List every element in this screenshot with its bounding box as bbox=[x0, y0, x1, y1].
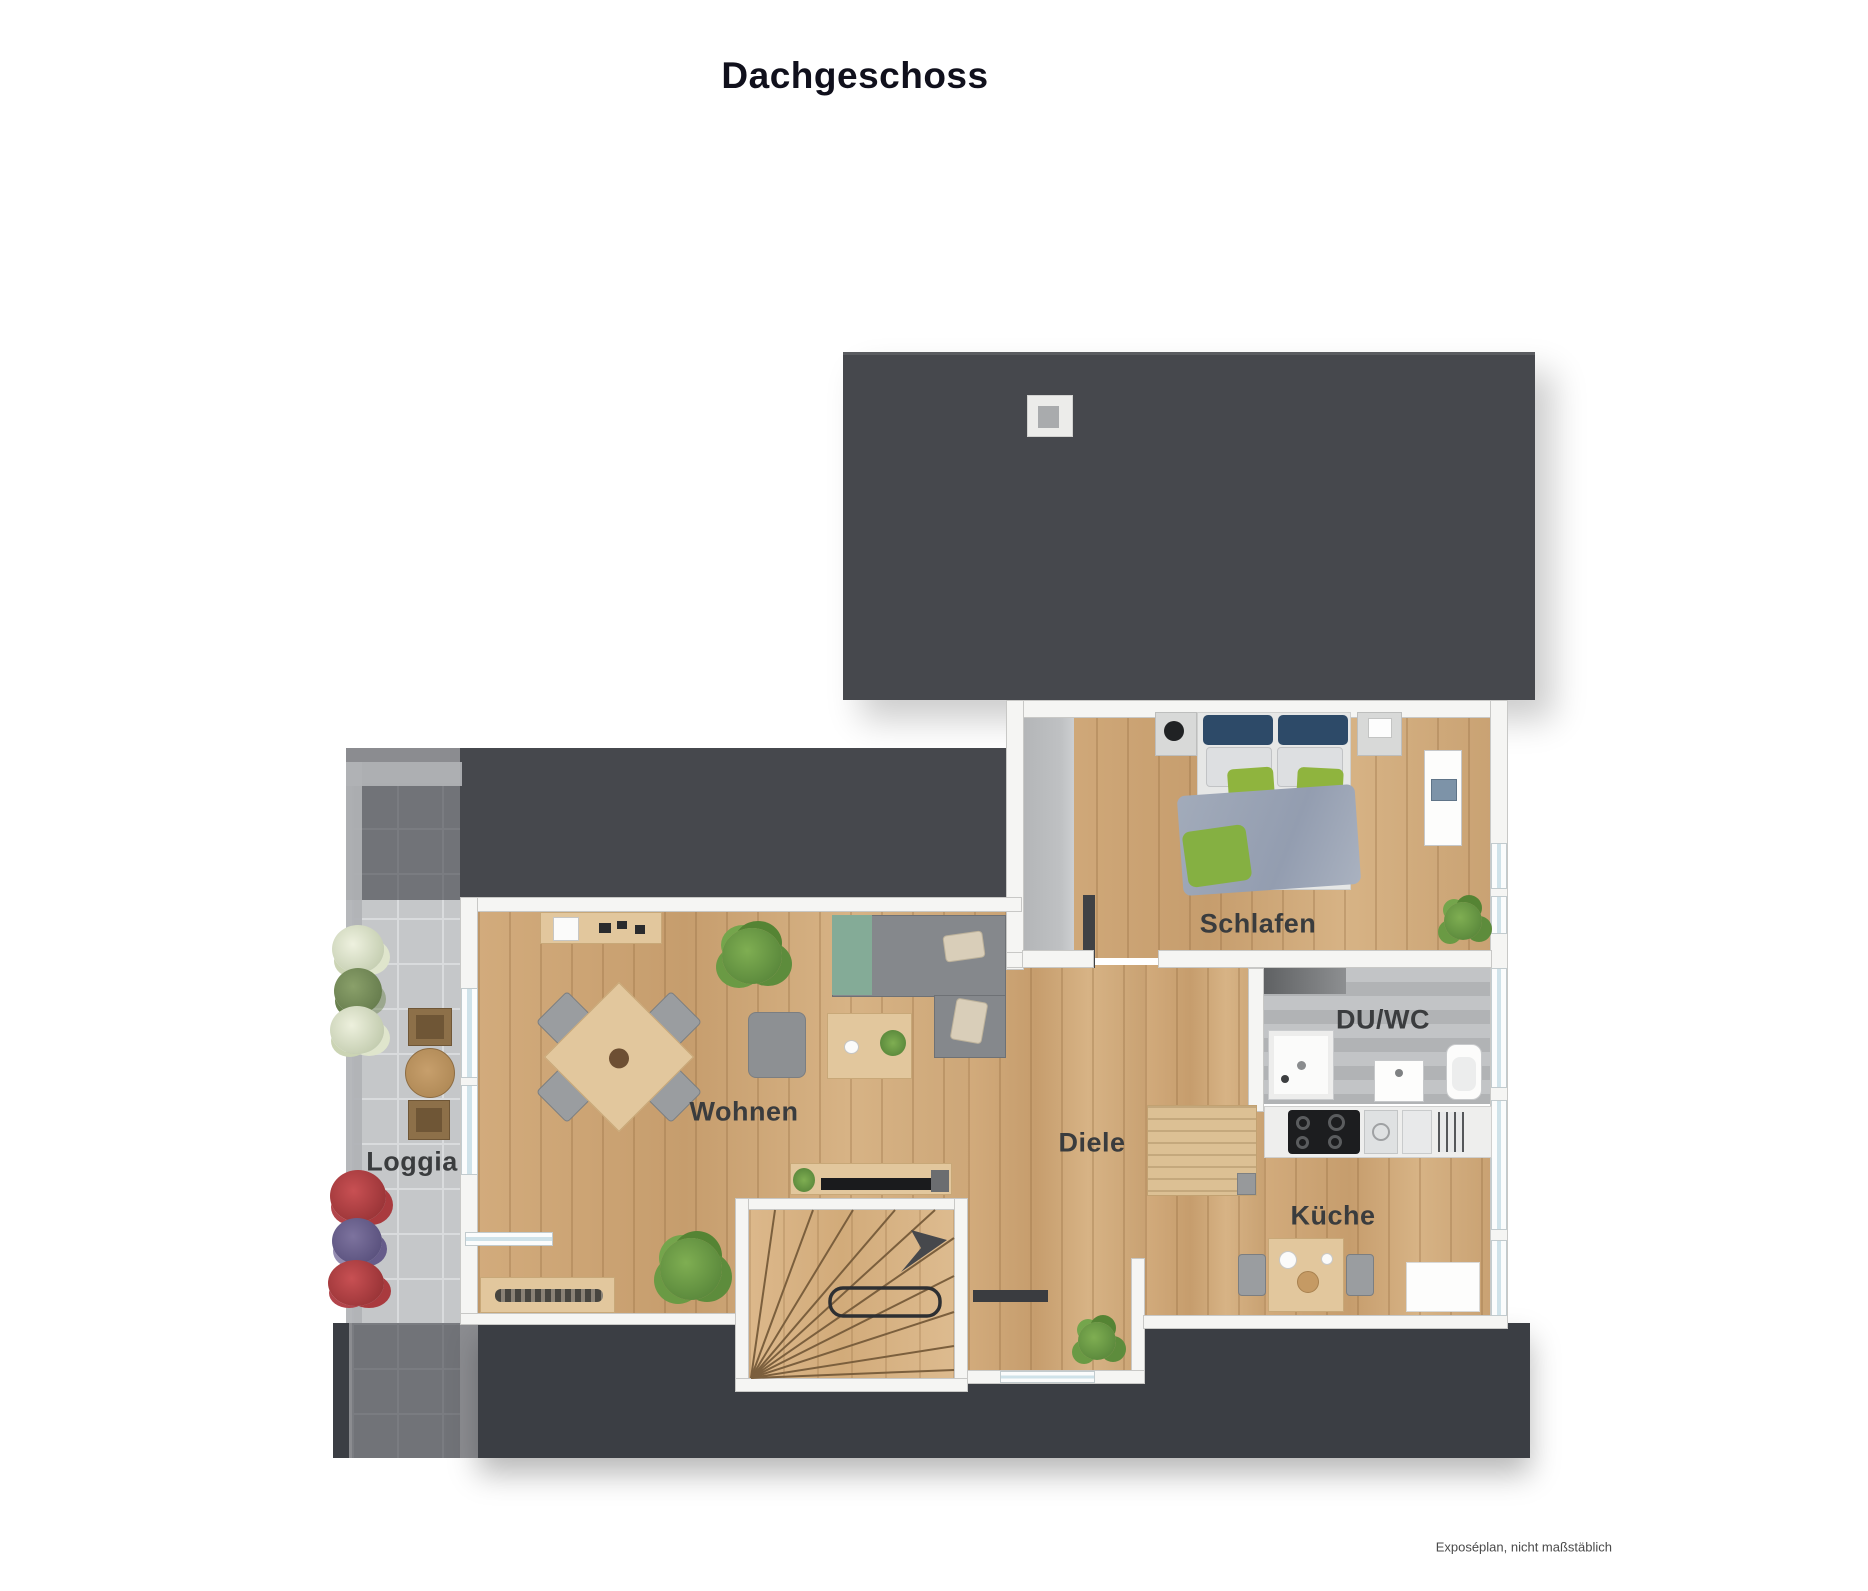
label-kueche: Küche bbox=[1290, 1201, 1375, 1232]
loggia-stool-1 bbox=[408, 1008, 452, 1046]
tv-lowboard bbox=[790, 1163, 952, 1195]
kitchen-sink bbox=[1364, 1110, 1398, 1154]
schlafen-west-wall bbox=[1006, 700, 1024, 970]
duwc-shelf bbox=[1264, 968, 1346, 994]
stair-opening-rail bbox=[973, 1290, 1048, 1302]
schlafen-east-window-1 bbox=[1491, 843, 1507, 889]
roof-left-band bbox=[460, 748, 1022, 900]
cooktop bbox=[1288, 1110, 1360, 1154]
wohnen-south-wall bbox=[460, 1313, 738, 1325]
bedside-lamp bbox=[1164, 721, 1184, 741]
sofa-cushion-1 bbox=[942, 930, 985, 962]
floor-plan: Dachgeschoss bbox=[0, 0, 1868, 1591]
burner-1 bbox=[1296, 1116, 1310, 1130]
coffee-table bbox=[827, 1013, 912, 1079]
loggia-table bbox=[405, 1048, 455, 1098]
cutting-board bbox=[1402, 1110, 1432, 1154]
duwc-west-wall bbox=[1248, 968, 1264, 1112]
schlafen-plant bbox=[1444, 902, 1482, 940]
bed-throw-green bbox=[1181, 824, 1252, 888]
footnote: Exposéplan, nicht maßstäblich bbox=[1436, 1540, 1612, 1555]
roof-top bbox=[843, 352, 1535, 700]
label-diele: Diele bbox=[1058, 1128, 1125, 1159]
loggia-flowers-red-2 bbox=[328, 1260, 384, 1306]
duwc-east-window bbox=[1491, 968, 1507, 1088]
laptop bbox=[1431, 779, 1457, 801]
armchair bbox=[748, 1012, 806, 1078]
kitchen-sink-basin bbox=[1372, 1123, 1390, 1141]
loggia-parapet-top bbox=[346, 762, 462, 786]
picture-frame bbox=[553, 917, 579, 941]
wardrobe bbox=[1147, 1105, 1257, 1196]
label-duwc: DU/WC bbox=[1336, 1005, 1430, 1036]
utensils bbox=[1438, 1112, 1464, 1152]
sideboard bbox=[540, 912, 662, 944]
chimney-flue bbox=[1038, 406, 1059, 428]
shower-drain bbox=[1297, 1061, 1306, 1070]
tv-plant bbox=[793, 1168, 815, 1192]
deco-3 bbox=[635, 925, 645, 934]
stairs-up-arrow-icon bbox=[901, 1230, 947, 1272]
schlafen-south-wall-a bbox=[1022, 950, 1094, 968]
kitchen-table bbox=[1268, 1238, 1344, 1312]
loggia-flowers-purple bbox=[332, 1218, 382, 1264]
nightstand-right bbox=[1357, 712, 1402, 756]
label-wohnen: Wohnen bbox=[690, 1097, 799, 1128]
coffee-table-cup bbox=[844, 1040, 859, 1054]
burner-2 bbox=[1328, 1114, 1345, 1131]
page-title: Dachgeschoss bbox=[721, 55, 988, 97]
wohnen-west-window-2 bbox=[461, 1085, 478, 1175]
loggia-flowers-white-1 bbox=[332, 925, 384, 973]
wardrobe-box bbox=[1237, 1173, 1256, 1195]
coffee-table-plant bbox=[880, 1030, 906, 1056]
roof-bottom-over-loggia bbox=[346, 1323, 478, 1458]
loggia-flowers-red-1 bbox=[330, 1170, 386, 1222]
kueche-east-window-1 bbox=[1491, 1100, 1507, 1230]
kitchen-chair-right bbox=[1346, 1254, 1374, 1296]
schlafen-desk bbox=[1424, 750, 1462, 846]
stairs-treads bbox=[735, 1198, 968, 1392]
burner-3 bbox=[1296, 1136, 1309, 1149]
dining-centerpiece bbox=[605, 1044, 633, 1072]
sink-faucet bbox=[1395, 1069, 1403, 1077]
nightstand-book bbox=[1368, 718, 1392, 738]
wohnen-north-wall bbox=[460, 897, 1022, 912]
schlafen-east-window-2 bbox=[1491, 896, 1507, 934]
loggia-flowers-white-2 bbox=[330, 1006, 384, 1054]
low-bench bbox=[480, 1277, 615, 1313]
kueche-south-wall bbox=[1143, 1315, 1508, 1329]
bench-items bbox=[495, 1289, 603, 1302]
bed-pillow-navy-right bbox=[1278, 715, 1348, 745]
sofa-green-throw bbox=[832, 915, 872, 995]
roof-bottom-left-edge bbox=[333, 1323, 349, 1458]
label-schlafen: Schlafen bbox=[1200, 909, 1317, 940]
plate-1 bbox=[1279, 1251, 1297, 1269]
diele-plant bbox=[1078, 1322, 1116, 1360]
loggia-stool-1-seat bbox=[416, 1015, 444, 1039]
nightstand-left bbox=[1155, 712, 1197, 756]
toilet-seat bbox=[1452, 1057, 1476, 1091]
wohnen-southwest-window bbox=[465, 1232, 553, 1246]
shower-head bbox=[1281, 1075, 1289, 1083]
wohnen-plant-top bbox=[722, 928, 782, 984]
bed-pillow-navy-left bbox=[1203, 715, 1273, 745]
stair-void-strip bbox=[1022, 712, 1074, 952]
kueche-east-window-2 bbox=[1491, 1240, 1507, 1316]
shower bbox=[1268, 1030, 1334, 1100]
loggia-stool-2-seat bbox=[416, 1108, 442, 1132]
schlafen-south-wall-b bbox=[1158, 950, 1492, 968]
deco-2 bbox=[617, 921, 627, 929]
plate-2 bbox=[1297, 1271, 1319, 1293]
diele-south-window bbox=[1000, 1371, 1095, 1383]
loggia-stool-2 bbox=[408, 1100, 450, 1140]
wohnen-west-window-1 bbox=[461, 988, 478, 1078]
wohnen-plant-bottom bbox=[660, 1238, 722, 1300]
burner-4 bbox=[1328, 1135, 1342, 1149]
cup bbox=[1321, 1253, 1333, 1265]
bath-sink bbox=[1374, 1060, 1424, 1102]
deco-1 bbox=[599, 923, 611, 933]
label-loggia: Loggia bbox=[366, 1147, 458, 1178]
tv-speaker bbox=[931, 1170, 949, 1192]
chimney bbox=[1027, 395, 1073, 437]
kitchen-terrace-door bbox=[1406, 1262, 1480, 1312]
tv bbox=[821, 1178, 931, 1190]
kitchen-chair-left bbox=[1238, 1254, 1266, 1296]
toilet bbox=[1446, 1044, 1482, 1100]
